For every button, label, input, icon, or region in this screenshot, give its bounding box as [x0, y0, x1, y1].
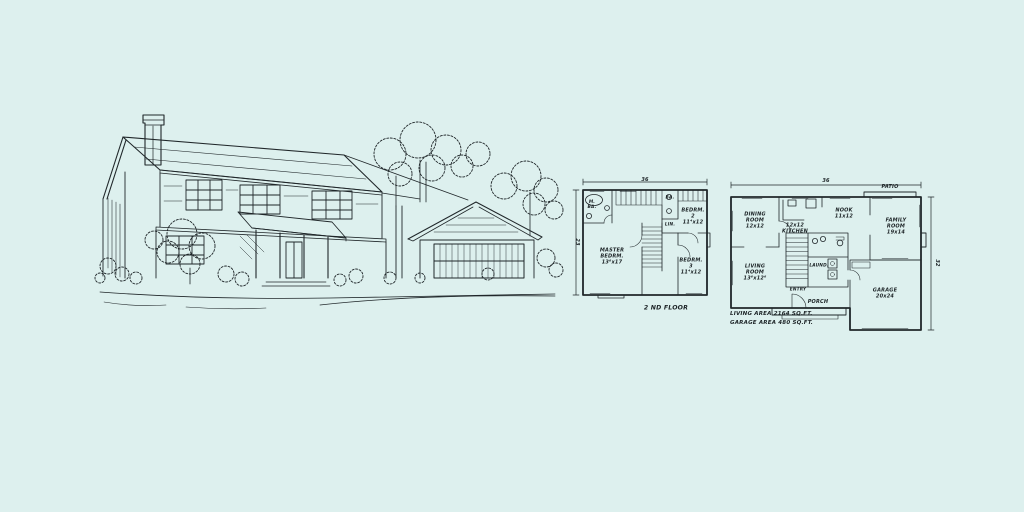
room-label-laundry: LAUND.: [809, 265, 828, 270]
first-floor-wall: [156, 212, 386, 286]
room-label-patio: PATIO: [881, 185, 898, 191]
second-floor-plan-walls: [570, 175, 715, 323]
stairs: [786, 238, 808, 279]
interior-walls: [583, 190, 707, 295]
room-label-dining: DINING ROOM 12x12: [744, 212, 766, 229]
garage-sketch: [344, 155, 542, 278]
sink: [605, 206, 610, 211]
room-label-bedroom2: BEDRM. 2 11⁴x12: [681, 208, 704, 225]
plan-title-2nd-floor: 2 ND FLOOR: [644, 304, 688, 311]
first-floor-plan: PATIO DINING ROOM 12x12 12x12 KITCHEN NO…: [722, 175, 947, 340]
room-label-kitchen: 12x12 KITCHEN: [782, 223, 808, 235]
room-label-garage: GARAGE 20x24: [873, 288, 897, 300]
driveway-ground-lines: [100, 292, 555, 309]
room-label-bath: BA.: [666, 197, 675, 202]
garage-storage: [852, 262, 870, 268]
toilet: [667, 209, 672, 214]
stairs: [642, 227, 662, 267]
room-label-master-bedroom: MASTER BEDRM. 13⁶x17: [600, 248, 624, 265]
room-label-nook: NOOK 11x12: [835, 208, 853, 220]
sink: [812, 238, 817, 243]
room-label-linen: LIN.: [665, 224, 675, 229]
sink: [820, 236, 825, 241]
dimension-depth-label: 32: [933, 259, 939, 266]
room-label-entry: ENTRY: [790, 289, 807, 294]
living-area-note: LIVING AREA 2164 SQ.FT.: [730, 311, 813, 317]
toilet: [837, 240, 843, 246]
dimension-width-label: 36: [822, 179, 829, 185]
room-label-living: LIVING ROOM 13⁶x12⁶: [744, 264, 767, 281]
laundry-machines: [828, 259, 837, 279]
room-label-bedroom3: BEDRM. 3 11⁴x12: [679, 258, 702, 275]
scanned-architectural-sheet: M. BA. BA. LIN. BEDRM. 2 11⁴x12 MASTER B…: [0, 0, 1024, 512]
exterior-walls: [583, 190, 707, 295]
second-floor-plan: M. BA. BA. LIN. BEDRM. 2 11⁴x12 MASTER B…: [570, 175, 715, 323]
room-label-master-bath: M. BA.: [588, 201, 597, 211]
room-label-porch: PORCH: [808, 300, 829, 306]
toilet: [586, 213, 591, 218]
dimension-depth-label: 23: [573, 238, 579, 245]
kitchen-counters: [783, 199, 816, 220]
entry-door: [792, 294, 806, 308]
second-story-wall: [156, 173, 386, 242]
dimension-width-label: 36: [641, 178, 648, 184]
house-illustration: [90, 106, 560, 318]
garage-door: [434, 244, 524, 278]
room-label-family: FAMILY ROOM 19x14: [886, 218, 907, 235]
garage-area-note: GARAGE AREA 480 SQ.FT.: [730, 320, 813, 326]
